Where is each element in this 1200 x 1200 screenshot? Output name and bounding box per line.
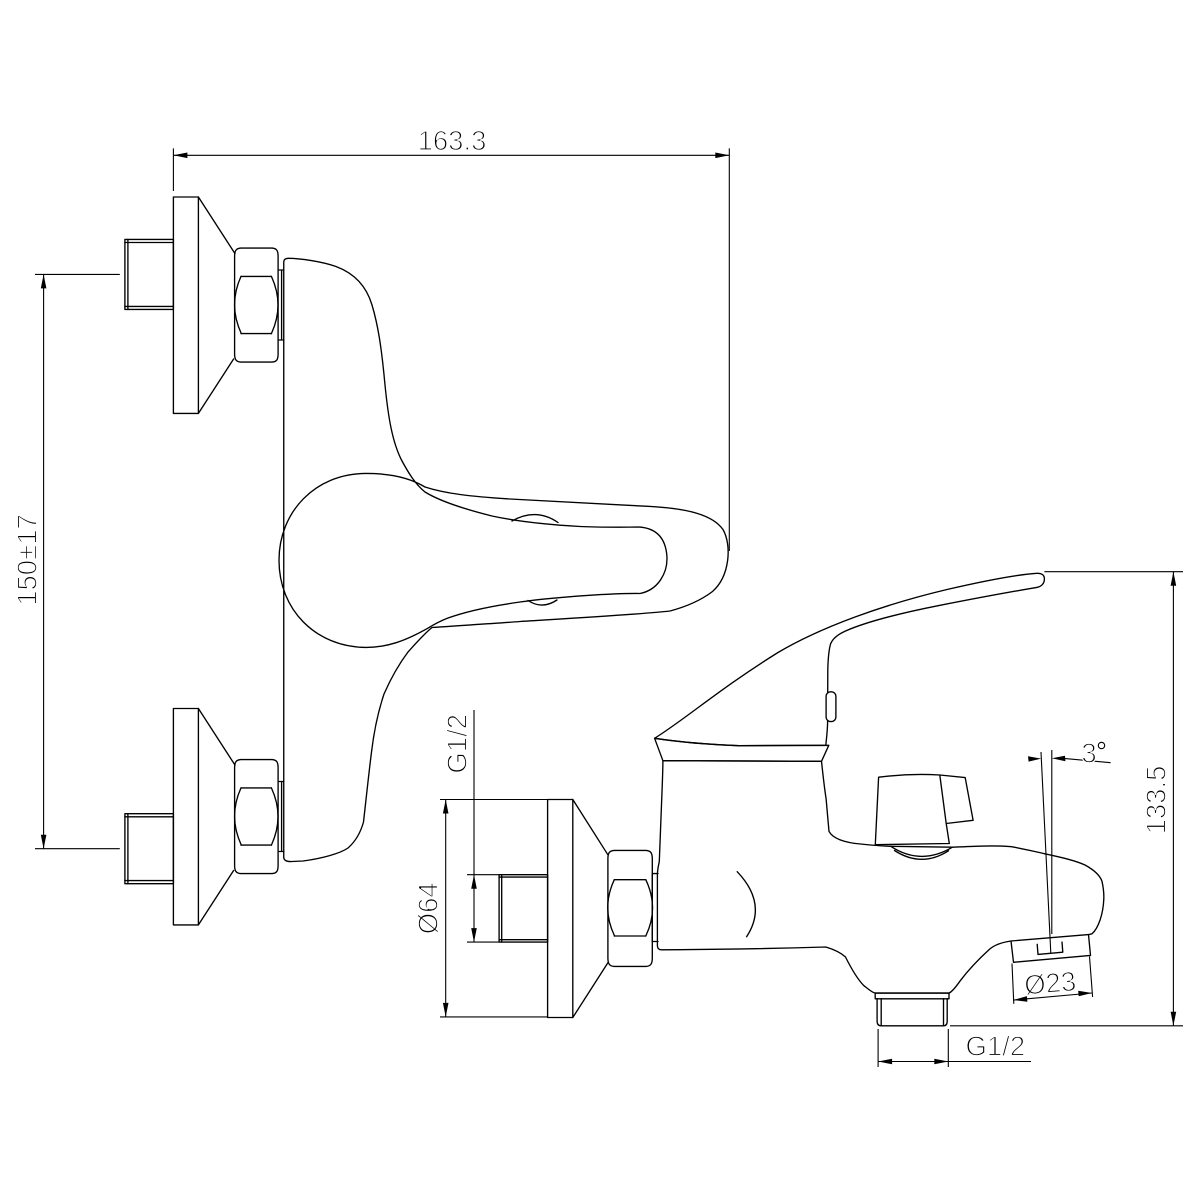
svg-text:163.3: 163.3	[418, 125, 487, 156]
svg-text:Ø64: Ø64	[413, 882, 444, 934]
svg-text:3: 3	[1081, 738, 1096, 769]
svg-text:G1/2: G1/2	[442, 714, 473, 774]
svg-text:G1/2: G1/2	[966, 1031, 1026, 1062]
svg-text:133.5: 133.5	[1141, 766, 1172, 835]
svg-text:150±17: 150±17	[11, 514, 42, 606]
svg-text:Ø23: Ø23	[1023, 965, 1077, 1000]
